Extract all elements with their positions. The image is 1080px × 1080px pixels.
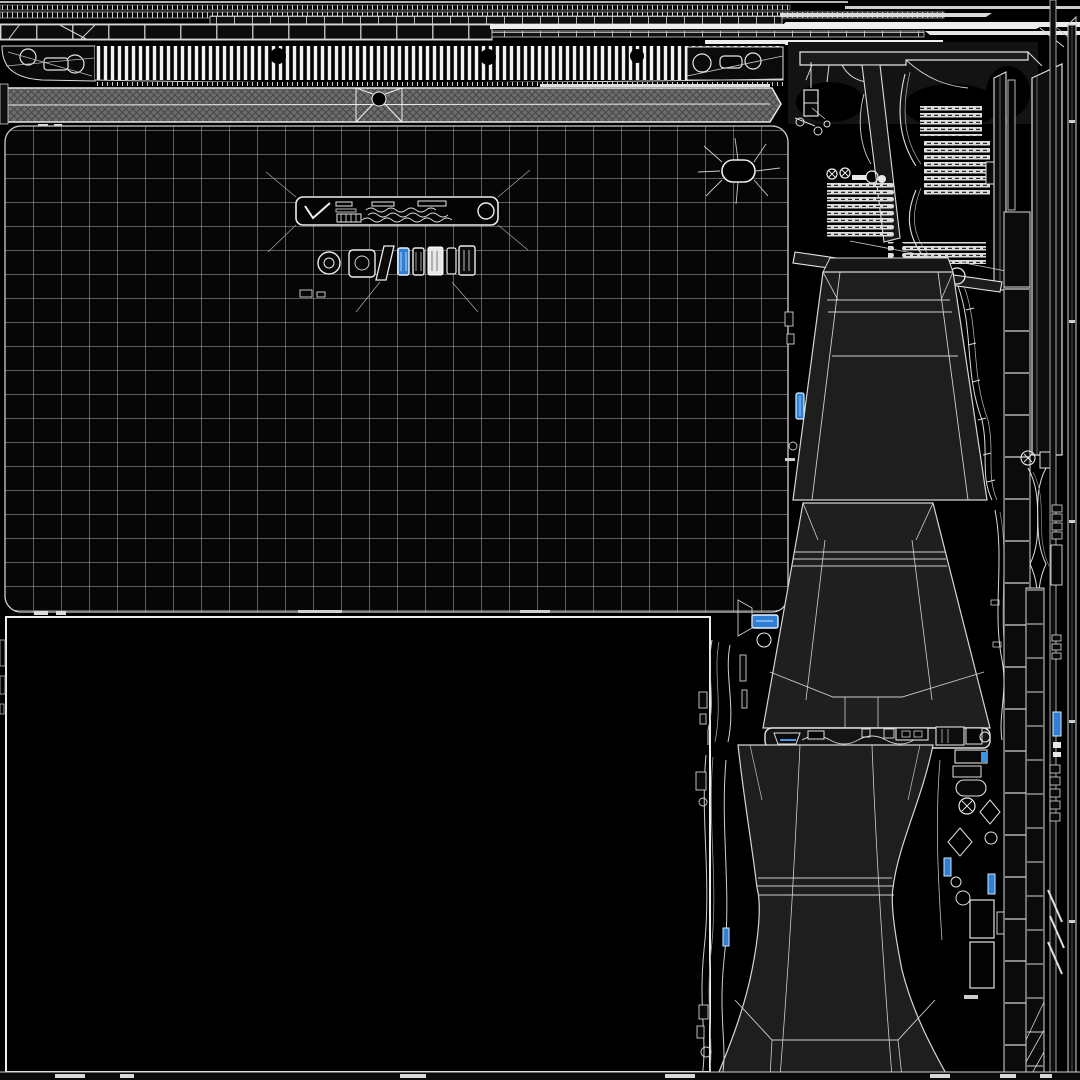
grid-panel-shape [349,250,375,277]
panel-strip [1032,64,1062,455]
stand-column-upper [793,272,987,500]
far-right-strips-shape [1052,514,1062,521]
blue-accent-port [1053,712,1061,736]
cable-hole [722,160,755,182]
grille-assembly-shape [720,56,742,68]
crosshatch-bar-shape [372,92,386,106]
blue-accent-port [944,858,951,876]
bottom-strip-shape [55,1074,85,1078]
screen-front-shape [0,640,5,666]
far-right-strips-shape [1050,801,1060,809]
right-cables-top-shape [986,162,994,184]
bottom-strip-shape [665,1074,695,1078]
right-connector-cluster-shape [970,942,994,988]
top-strips-shape [845,6,1080,9]
stand-segment-upper-shape [785,312,793,326]
cables-left-of-mid-shape [699,692,707,708]
crosshatch-bar [0,84,781,127]
cable-bundle [920,104,982,136]
bottom-strip-shape [120,1074,134,1078]
far-right-strips-shape [1052,635,1061,641]
wireframe-scene [0,0,1080,1080]
cables-left-of-lower-shape [699,1005,708,1019]
grille-assembly-shape [630,49,644,63]
grid-panel-shape [34,611,48,615]
cables-left-of-lower-shape [696,772,706,790]
bottom-strip-shape [400,1074,426,1078]
stand-segment-mid-shape [808,731,824,739]
blue-accent-port [981,752,987,762]
far-right-strips-shape [1050,765,1060,773]
stand-segment-mid-shape [774,733,800,744]
far-right-strips-shape [1050,813,1060,821]
cables-left-of-mid-shape [700,714,706,724]
far-right-strips-shape [1069,920,1075,923]
far-right-strips-shape [1052,532,1062,539]
grid-panel-shape [413,248,424,275]
grid-panel-shape [447,248,456,274]
stand-segment-upper-shape [787,334,794,344]
right-connector-cluster-shape [964,995,978,999]
top-strips-shape [0,5,790,10]
cable-bundle [827,182,897,238]
stand-segment-upper-shape [823,258,953,272]
screen-front [0,617,710,1072]
grid-panel-shape [520,610,550,613]
right-cables-top-shape [852,175,866,180]
bottom-strip [0,1072,1080,1080]
cable-bundle [924,140,990,196]
stand-segment-mid-shape [896,728,928,740]
grille-assembly-shape [480,49,496,65]
right-ladders-shape [1004,212,1030,288]
screen-front-shape [0,704,4,714]
far-right-strips-shape [1052,523,1062,530]
grid-panel-shape [428,247,443,275]
far-right-strips-shape [1052,644,1061,650]
cables-left-of-mid-shape [740,655,746,681]
screen-front-shape [0,676,5,694]
bottom-strip-shape [1040,1074,1052,1078]
stand-segment-mid-shape [936,727,964,745]
bottom-strip-shape [0,1072,1080,1080]
grid-panel-shape [298,610,342,613]
right-connector-cluster-shape [970,900,994,938]
right-cables-top-shape [878,175,886,183]
top-strips-shape [492,31,924,37]
grid-panel-shape [56,611,66,615]
far-right-strips-shape [1053,742,1061,748]
top-strips-shape [780,22,1080,27]
far-right-strips-shape [1051,545,1062,585]
screen-front-rect [6,617,710,1072]
far-right-strips-shape [1050,789,1060,797]
right-connector-cluster-shape [953,766,981,777]
grid-panel [5,126,788,615]
bottom-strip-shape [1000,1074,1016,1078]
top-strips-shape [780,13,992,17]
grille-assembly-shape [270,48,286,64]
wireframe-render [0,0,1080,1080]
usb3-port-blue [398,248,409,275]
far-right-strips-shape [1069,520,1075,523]
bottom-strip-shape [930,1074,950,1078]
far-right-strips-shape [1050,777,1060,785]
top-strips-shape [925,31,1080,35]
blue-accent-port [723,928,729,946]
blue-accent-port [988,874,995,894]
crosshatch-bar-shape [540,84,770,87]
far-right-strips-shape [1053,752,1061,757]
crosshatch-bar-shape [0,84,8,124]
grid-panel-shape [459,246,475,275]
far-right-strips-shape [1052,505,1062,512]
stand-segment-upper-shape [785,458,795,461]
far-right-strips-shape [1069,120,1075,123]
hdmi-port [956,780,986,796]
far-right-strips-shape [1069,720,1075,723]
far-right-strips-shape [1052,653,1061,659]
vent-grille [95,46,783,80]
far-right-strips-shape [1069,320,1075,323]
grille-assembly [0,44,785,86]
right-ladders-shape [1026,588,1044,1077]
cables-left-of-lower-shape [697,1026,704,1038]
right-ladders-shape [1008,80,1015,210]
top-strips-shape [210,16,782,24]
cables-left-of-mid-shape [742,690,747,708]
